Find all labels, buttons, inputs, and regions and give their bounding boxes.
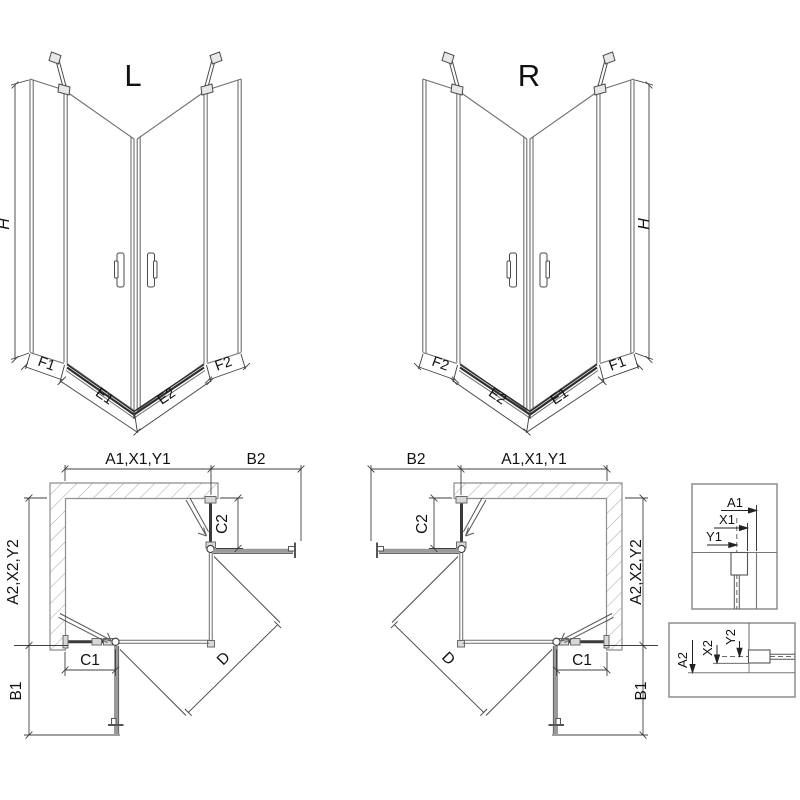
dim-label-b1-right-plan: B1 <box>633 682 650 701</box>
detail-label-a2: A2 <box>675 652 690 668</box>
dim-label-width-right-plan: A1,X1,Y1 <box>501 451 567 468</box>
dim-label-c1-left-plan: C1 <box>80 652 100 669</box>
detail-label-x1: X1 <box>719 512 735 527</box>
enclosure-3d-geometry-right <box>414 52 653 435</box>
walls-hatched-left-plan <box>50 483 218 650</box>
view-3d-left: L H F1 E1 E2 F2 <box>0 52 250 435</box>
plan-view-left: A1,X1,Y1 B2 A2,X2,Y2 B1 C2 C1 D <box>5 451 304 738</box>
dim-label-c2-left-plan: C2 <box>214 514 231 534</box>
dim-label-b2-left-plan: B2 <box>247 451 266 468</box>
walls-hatched-right-plan <box>454 483 622 650</box>
enclosure-3d-geometry-left <box>11 52 250 435</box>
dim-label-d-right-plan: D <box>438 649 458 669</box>
dim-label-height-left: H <box>0 218 13 230</box>
dim-label-e2-left: E2 <box>155 385 179 408</box>
dim-label-height-right: H <box>636 218 653 230</box>
shower-enclosure-diagram: L H F1 E1 E2 F2 R H F2 E2 E1 F1 A1,X1,Y1… <box>0 0 800 800</box>
dim-label-e2-right: E2 <box>485 385 509 408</box>
dim-label-c2-right-plan: C2 <box>414 514 431 534</box>
dim-label-c1-right-plan: C1 <box>572 652 592 669</box>
view-3d-right: R H F2 E2 E1 F1 <box>414 52 653 435</box>
plan-view-right: A1,X1,Y1 B2 A2,X2,Y2 B1 C2 C1 D <box>368 451 658 738</box>
dim-label-width-left-plan: A1,X1,Y1 <box>105 451 171 468</box>
version-title-right: R <box>518 58 540 93</box>
detail-box-wall-profile-side: A2 X2 Y2 <box>669 623 795 697</box>
detail-box-wall-profile-top: A1 X1 Y1 <box>692 484 777 609</box>
dim-label-depth-right-plan: A2,X2,Y2 <box>628 539 645 605</box>
detail-label-x2: X2 <box>700 640 715 656</box>
dim-label-depth-left-plan: A2,X2,Y2 <box>5 539 22 605</box>
dim-label-b2-right-plan: B2 <box>407 451 426 468</box>
detail-label-a1: A1 <box>727 495 743 510</box>
detail-label-y2: Y2 <box>723 629 738 645</box>
version-title-left: L <box>124 58 141 93</box>
dim-label-b1-left-plan: B1 <box>8 682 25 701</box>
diagram-page: L H F1 E1 E2 F2 R H F2 E2 E1 F1 A1,X1,Y1… <box>0 0 800 800</box>
detail-label-y1: Y1 <box>706 529 722 544</box>
dim-label-d-left-plan: D <box>214 649 234 669</box>
